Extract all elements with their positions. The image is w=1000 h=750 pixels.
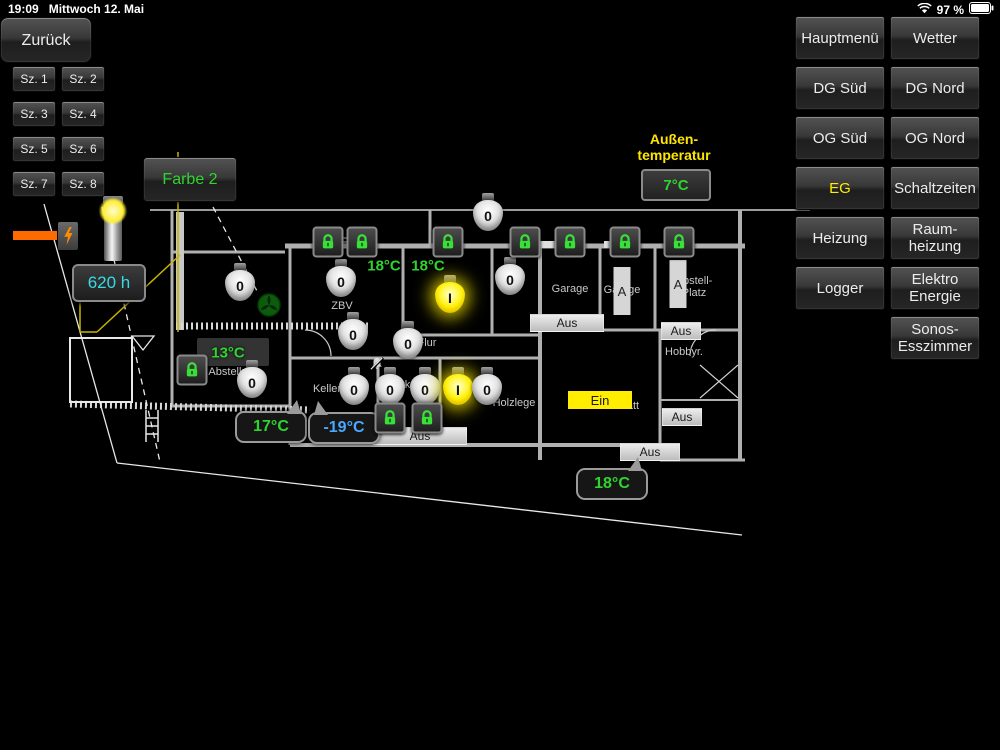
light-bulb-off[interactable]: 0 — [375, 367, 405, 405]
room-temperature: 13°C — [211, 345, 245, 362]
light-bulb-off[interactable]: 0 — [472, 367, 502, 405]
bulb-value: 0 — [473, 200, 503, 231]
bubble-value: -19°C — [323, 419, 364, 437]
light-bulb-on[interactable]: I — [443, 367, 473, 405]
bubble-value: 17°C — [253, 418, 289, 436]
bulb-value: 0 — [472, 374, 502, 405]
lock-toggle[interactable] — [177, 355, 208, 386]
bulb-value: 0 — [393, 328, 423, 359]
lock-icon — [319, 233, 338, 252]
lock-icon — [561, 233, 580, 252]
bulb-value: I — [435, 282, 465, 313]
light-bulb-off[interactable]: 0 — [393, 321, 423, 359]
bubble-tail — [314, 401, 328, 415]
switch-status-aus: Aus — [530, 314, 604, 332]
bulb-value: 0 — [375, 374, 405, 405]
room-label-keller: Keller — [313, 383, 341, 395]
bubble-tail — [628, 457, 642, 471]
light-bulb-on[interactable]: I — [435, 275, 465, 313]
lock-toggle[interactable] — [313, 227, 344, 258]
bulb-value: 0 — [338, 319, 368, 350]
fan-icon[interactable] — [257, 293, 281, 317]
lock-toggle[interactable] — [412, 403, 443, 434]
light-bulb-off[interactable]: 0 — [237, 360, 267, 398]
temperature-bubble: -19°C — [308, 412, 380, 444]
light-bulb-off[interactable]: 0 — [473, 193, 503, 231]
app-screen: 19:09 Mittwoch 12. Mai 97 % — [0, 0, 1000, 750]
bulb-value: 0 — [225, 270, 255, 301]
lock-toggle[interactable] — [433, 227, 464, 258]
switch-status-aus: Aus — [661, 322, 701, 340]
bulb-value: I — [443, 374, 473, 405]
temperature-bubble: 17°C — [235, 411, 307, 443]
lock-icon — [353, 233, 372, 252]
garage-door-indicator: A — [670, 260, 687, 308]
room-label-garage: Garage — [552, 283, 589, 295]
bulb-value: 0 — [237, 367, 267, 398]
light-bulb-off[interactable]: 0 — [495, 257, 525, 295]
lock-icon — [439, 233, 458, 252]
bulb-value: 0 — [339, 374, 369, 405]
lock-icon — [516, 233, 535, 252]
lock-toggle[interactable] — [610, 227, 641, 258]
bubble-tail — [287, 400, 301, 414]
garage-door-indicator: A — [614, 267, 631, 315]
switch-status-aus: Aus — [662, 408, 702, 426]
lock-toggle[interactable] — [375, 403, 406, 434]
bulb-value: 0 — [410, 374, 440, 405]
lock-icon — [616, 233, 635, 252]
room-temperature: 18°C — [367, 258, 401, 275]
lock-icon — [418, 409, 437, 428]
room-temperature: 18°C — [411, 258, 445, 275]
light-bulb-off[interactable]: 0 — [225, 263, 255, 301]
bulb-value: 0 — [326, 266, 356, 297]
lock-toggle[interactable] — [347, 227, 378, 258]
light-bulb-off[interactable]: 0 — [338, 312, 368, 350]
room-label-zbv: ZBV — [331, 300, 352, 312]
light-bulb-off[interactable]: 0 — [339, 367, 369, 405]
plan-overlay: ZBVGarageGarageAbstell- PlatzFlurAbstell… — [0, 0, 1000, 750]
lock-toggle[interactable] — [555, 227, 586, 258]
lock-icon — [381, 409, 400, 428]
bulb-value: 0 — [495, 264, 525, 295]
bubble-value: 18°C — [594, 475, 630, 493]
light-bulb-off[interactable]: 0 — [326, 259, 356, 297]
light-bulb-off[interactable]: 0 — [410, 367, 440, 405]
switch-status-ein: Ein — [568, 391, 632, 409]
temperature-bubble: 18°C — [576, 468, 648, 500]
lock-toggle[interactable] — [664, 227, 695, 258]
lock-icon — [670, 233, 689, 252]
lock-icon — [183, 361, 202, 380]
bell-muted-icon — [370, 357, 384, 371]
lock-toggle[interactable] — [510, 227, 541, 258]
room-label-hobbyr: Hobbyr. — [665, 346, 703, 358]
